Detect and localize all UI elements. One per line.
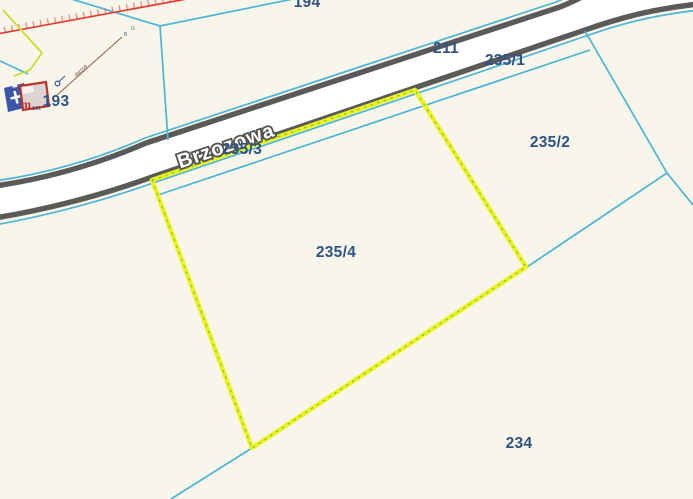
cadastral-map-view: 4M159 B G m 131 Brzozowa 194 211 235/1 2…	[0, 0, 693, 499]
building-notch	[12, 84, 18, 88]
parcel-label-235-3[interactable]: 235/3	[222, 141, 262, 158]
parcel-label-234[interactable]: 234	[506, 435, 533, 452]
building-small-label: 131	[32, 106, 41, 112]
map-canvas[interactable]: 4M159 B G m 131 Brzozowa 194 211 235/1 2…	[0, 0, 693, 499]
building-function-letter: m	[21, 97, 31, 111]
survey-mark-label: G	[131, 26, 135, 32]
parcel-label-235-4[interactable]: 235/4	[316, 244, 356, 261]
parcel-label-193[interactable]: 193	[43, 93, 70, 110]
parcel-label-235-1[interactable]: 235/1	[485, 52, 525, 69]
parcel-label-235-2[interactable]: 235/2	[530, 134, 570, 151]
parcel-label-194[interactable]: 194	[294, 0, 321, 11]
parcel-label-211[interactable]: 211	[433, 40, 459, 57]
